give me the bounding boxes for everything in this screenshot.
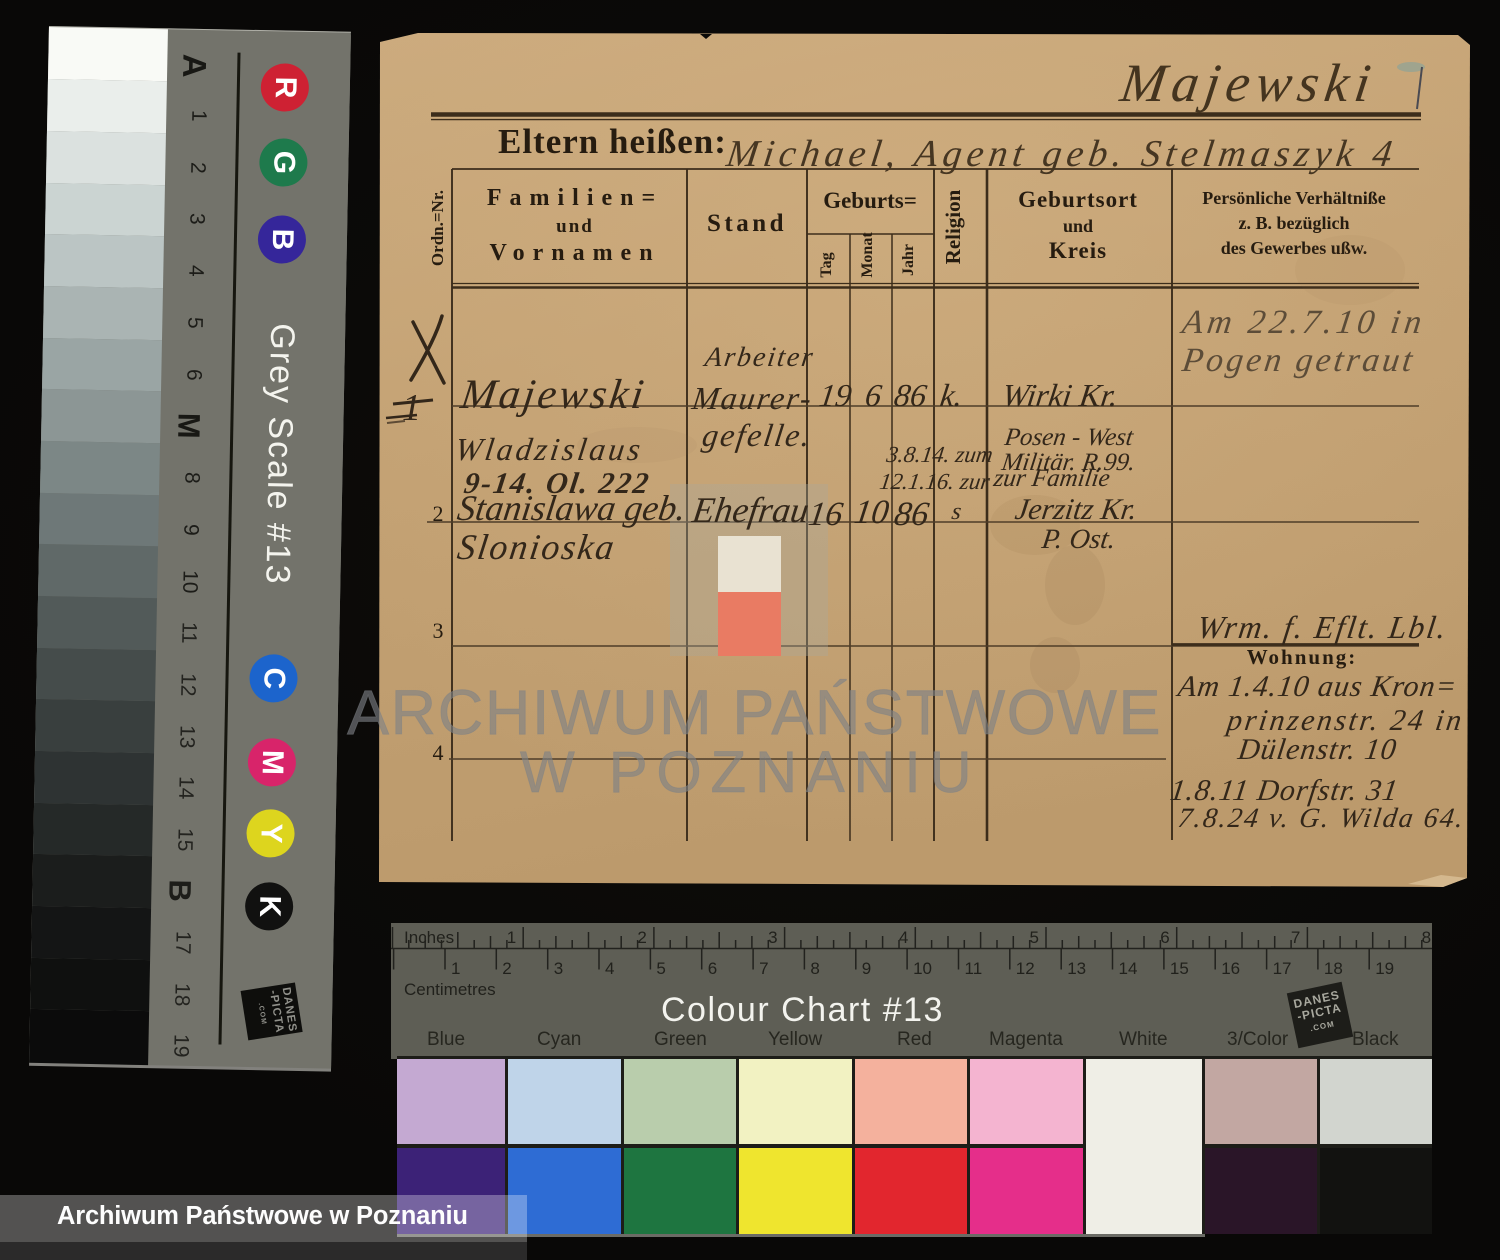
- svg-text:Maurer-: Maurer-: [689, 380, 816, 416]
- svg-text:Familien=: Familien=: [487, 185, 663, 211]
- svg-text:2: 2: [637, 928, 646, 947]
- svg-text:3.8.14. zum: 3.8.14. zum: [884, 441, 995, 467]
- svg-text:1: 1: [402, 387, 421, 429]
- svg-text:Tag: Tag: [818, 252, 835, 277]
- svg-text:Stanislawa geb.: Stanislawa geb.: [455, 488, 688, 528]
- svg-text:11: 11: [965, 959, 983, 978]
- svg-text:14: 14: [1119, 959, 1138, 978]
- svg-text:86: 86: [892, 496, 931, 533]
- svg-text:10: 10: [913, 959, 932, 978]
- svg-text:zur Familie: zur Familie: [991, 465, 1112, 492]
- svg-text:13: 13: [1067, 959, 1086, 978]
- svg-text:Wrm. f. Eflt. Lbl.: Wrm. f. Eflt. Lbl.: [1195, 609, 1450, 645]
- svg-text:10: 10: [852, 494, 891, 531]
- svg-text:5: 5: [1030, 928, 1039, 947]
- svg-text:7: 7: [1291, 928, 1300, 947]
- svg-text:und: und: [556, 216, 594, 237]
- svg-text:3: 3: [768, 928, 777, 947]
- svg-text:16: 16: [1221, 959, 1240, 978]
- svg-text:gefelle.: gefelle.: [700, 417, 814, 453]
- svg-text:Kreis: Kreis: [1049, 238, 1107, 263]
- svg-text:1.8.11 Dorfstr. 31: 1.8.11 Dorfstr. 31: [1168, 773, 1401, 807]
- svg-text:4: 4: [899, 928, 908, 947]
- svg-text:Pogen getraut: Pogen getraut: [1179, 342, 1418, 379]
- svg-text:Ordn.=Nr.: Ordn.=Nr.: [428, 190, 447, 266]
- svg-text:15: 15: [1170, 959, 1189, 978]
- svg-text:6: 6: [708, 959, 717, 978]
- svg-text:19: 19: [817, 377, 854, 413]
- svg-text:Posen - West: Posen - West: [1002, 424, 1136, 451]
- svg-text:1: 1: [451, 959, 460, 978]
- svg-text:3: 3: [433, 618, 444, 643]
- svg-text:Persönliche Verhältniße: Persönliche Verhältniße: [1202, 188, 1386, 208]
- svg-text:6: 6: [1160, 928, 1169, 947]
- svg-text:Wladzislaus: Wladzislaus: [453, 431, 646, 467]
- svg-text:Majewski: Majewski: [1116, 53, 1380, 113]
- svg-text:8: 8: [810, 959, 819, 978]
- svg-text:Monat: Monat: [859, 232, 876, 278]
- svg-text:Slonioska: Slonioska: [455, 527, 619, 567]
- svg-text:und: und: [1063, 216, 1093, 236]
- svg-text:3: 3: [554, 959, 563, 978]
- svg-text:12.1.16. zur: 12.1.16. zur: [878, 468, 993, 494]
- svg-text:2: 2: [433, 501, 444, 526]
- svg-text:12: 12: [1016, 959, 1035, 978]
- svg-text:z. B. bezüglich: z. B. bezüglich: [1239, 213, 1350, 233]
- svg-text:86: 86: [892, 377, 929, 413]
- svg-text:Arbeiter: Arbeiter: [701, 342, 817, 373]
- svg-text:Jahr: Jahr: [900, 244, 917, 276]
- svg-text:Majewski: Majewski: [457, 371, 649, 418]
- svg-text:Dülenstr. 10: Dülenstr. 10: [1235, 732, 1399, 766]
- svg-text:7: 7: [759, 959, 768, 978]
- svg-text:5: 5: [656, 959, 665, 978]
- svg-text:Am 1.4.10 aus Kron=: Am 1.4.10 aus Kron=: [1174, 669, 1460, 703]
- svg-text:2: 2: [502, 959, 511, 978]
- svg-text:Stand: Stand: [707, 210, 787, 237]
- svg-text:Jerzitz Kr.: Jerzitz Kr.: [1013, 492, 1139, 526]
- svg-text:16: 16: [806, 496, 845, 533]
- svg-text:9: 9: [862, 959, 871, 978]
- svg-text:Wohnung:: Wohnung:: [1247, 645, 1358, 669]
- svg-text:Geburtsort: Geburtsort: [1018, 187, 1138, 212]
- svg-text:Religion: Religion: [941, 189, 965, 264]
- svg-text:18: 18: [1324, 959, 1343, 978]
- svg-text:Geburts=: Geburts=: [823, 188, 917, 213]
- svg-text:P. Ost.: P. Ost.: [1039, 524, 1118, 555]
- svg-text:Wirki Kr.: Wirki Kr.: [1000, 377, 1121, 413]
- svg-text:Vornamen: Vornamen: [489, 240, 660, 266]
- svg-text:Eltern heißen:: Eltern heißen:: [498, 122, 727, 161]
- svg-text:Michael, Agent geb. Stelmaszyk: Michael, Agent geb. Stelmaszyk 4: [723, 133, 1400, 175]
- svg-text:Ehefrau: Ehefrau: [689, 490, 812, 530]
- svg-text:8: 8: [1422, 928, 1431, 947]
- svg-text:Am 22.7.10 in: Am 22.7.10 in: [1178, 304, 1428, 341]
- svg-text:17: 17: [1273, 959, 1292, 978]
- svg-text:7.8.24 v. G. Wilda 64.: 7.8.24 v. G. Wilda 64.: [1176, 803, 1467, 834]
- svg-text:4: 4: [605, 959, 614, 978]
- svg-text:19: 19: [1375, 959, 1394, 978]
- svg-text:1: 1: [507, 928, 516, 947]
